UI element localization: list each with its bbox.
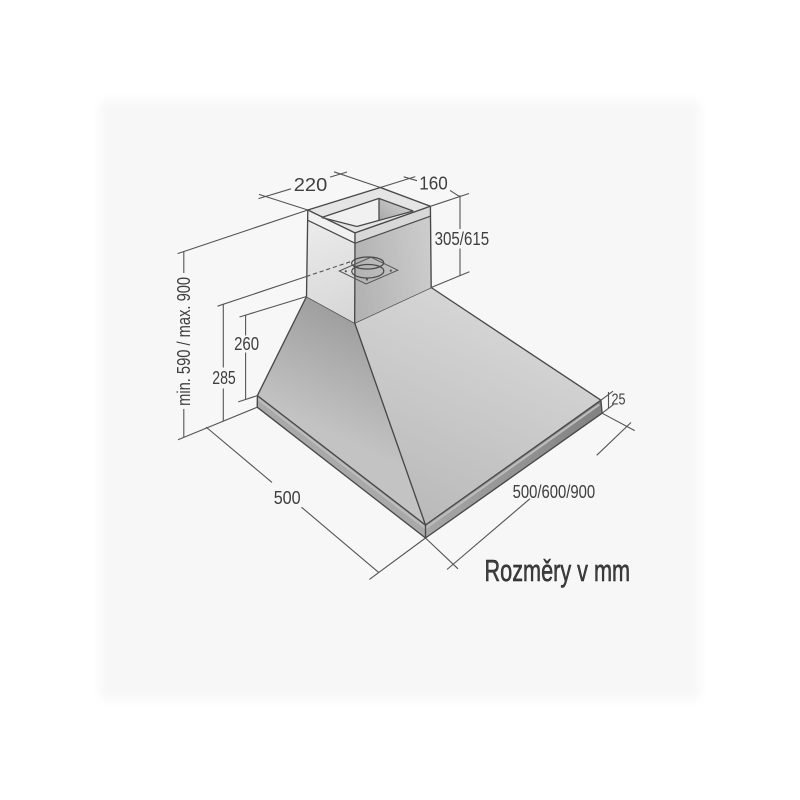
svg-text:220: 220 [294,175,328,195]
svg-text:500: 500 [274,488,301,508]
svg-text:25: 25 [612,392,626,409]
svg-text:Rozměry v mm: Rozměry v mm [485,553,631,588]
svg-text:min. 590 / max. 900: min. 590 / max. 900 [174,277,194,406]
svg-text:260: 260 [234,334,259,354]
svg-text:285: 285 [212,368,236,388]
svg-text:305/615: 305/615 [435,229,490,249]
svg-text:160: 160 [419,174,448,194]
svg-text:500/600/900: 500/600/900 [513,482,596,502]
